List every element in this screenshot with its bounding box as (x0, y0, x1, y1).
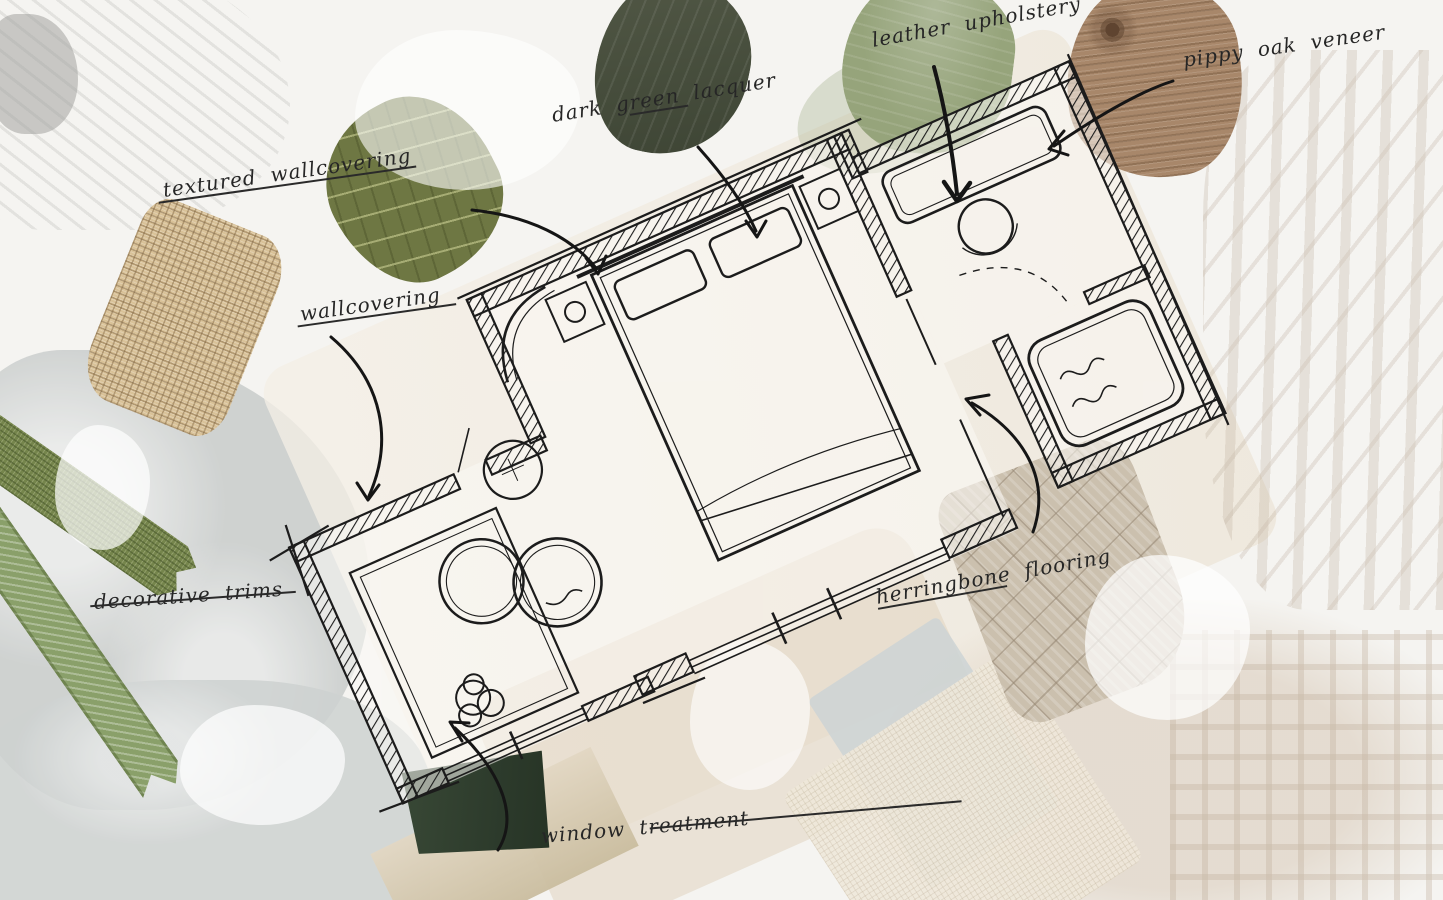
floor-plan-sketch (0, 0, 1443, 900)
mood-board: textured wallcovering wallcovering dark … (0, 0, 1443, 900)
arrow-wallcovering (331, 337, 382, 496)
arrowhead (357, 483, 379, 500)
